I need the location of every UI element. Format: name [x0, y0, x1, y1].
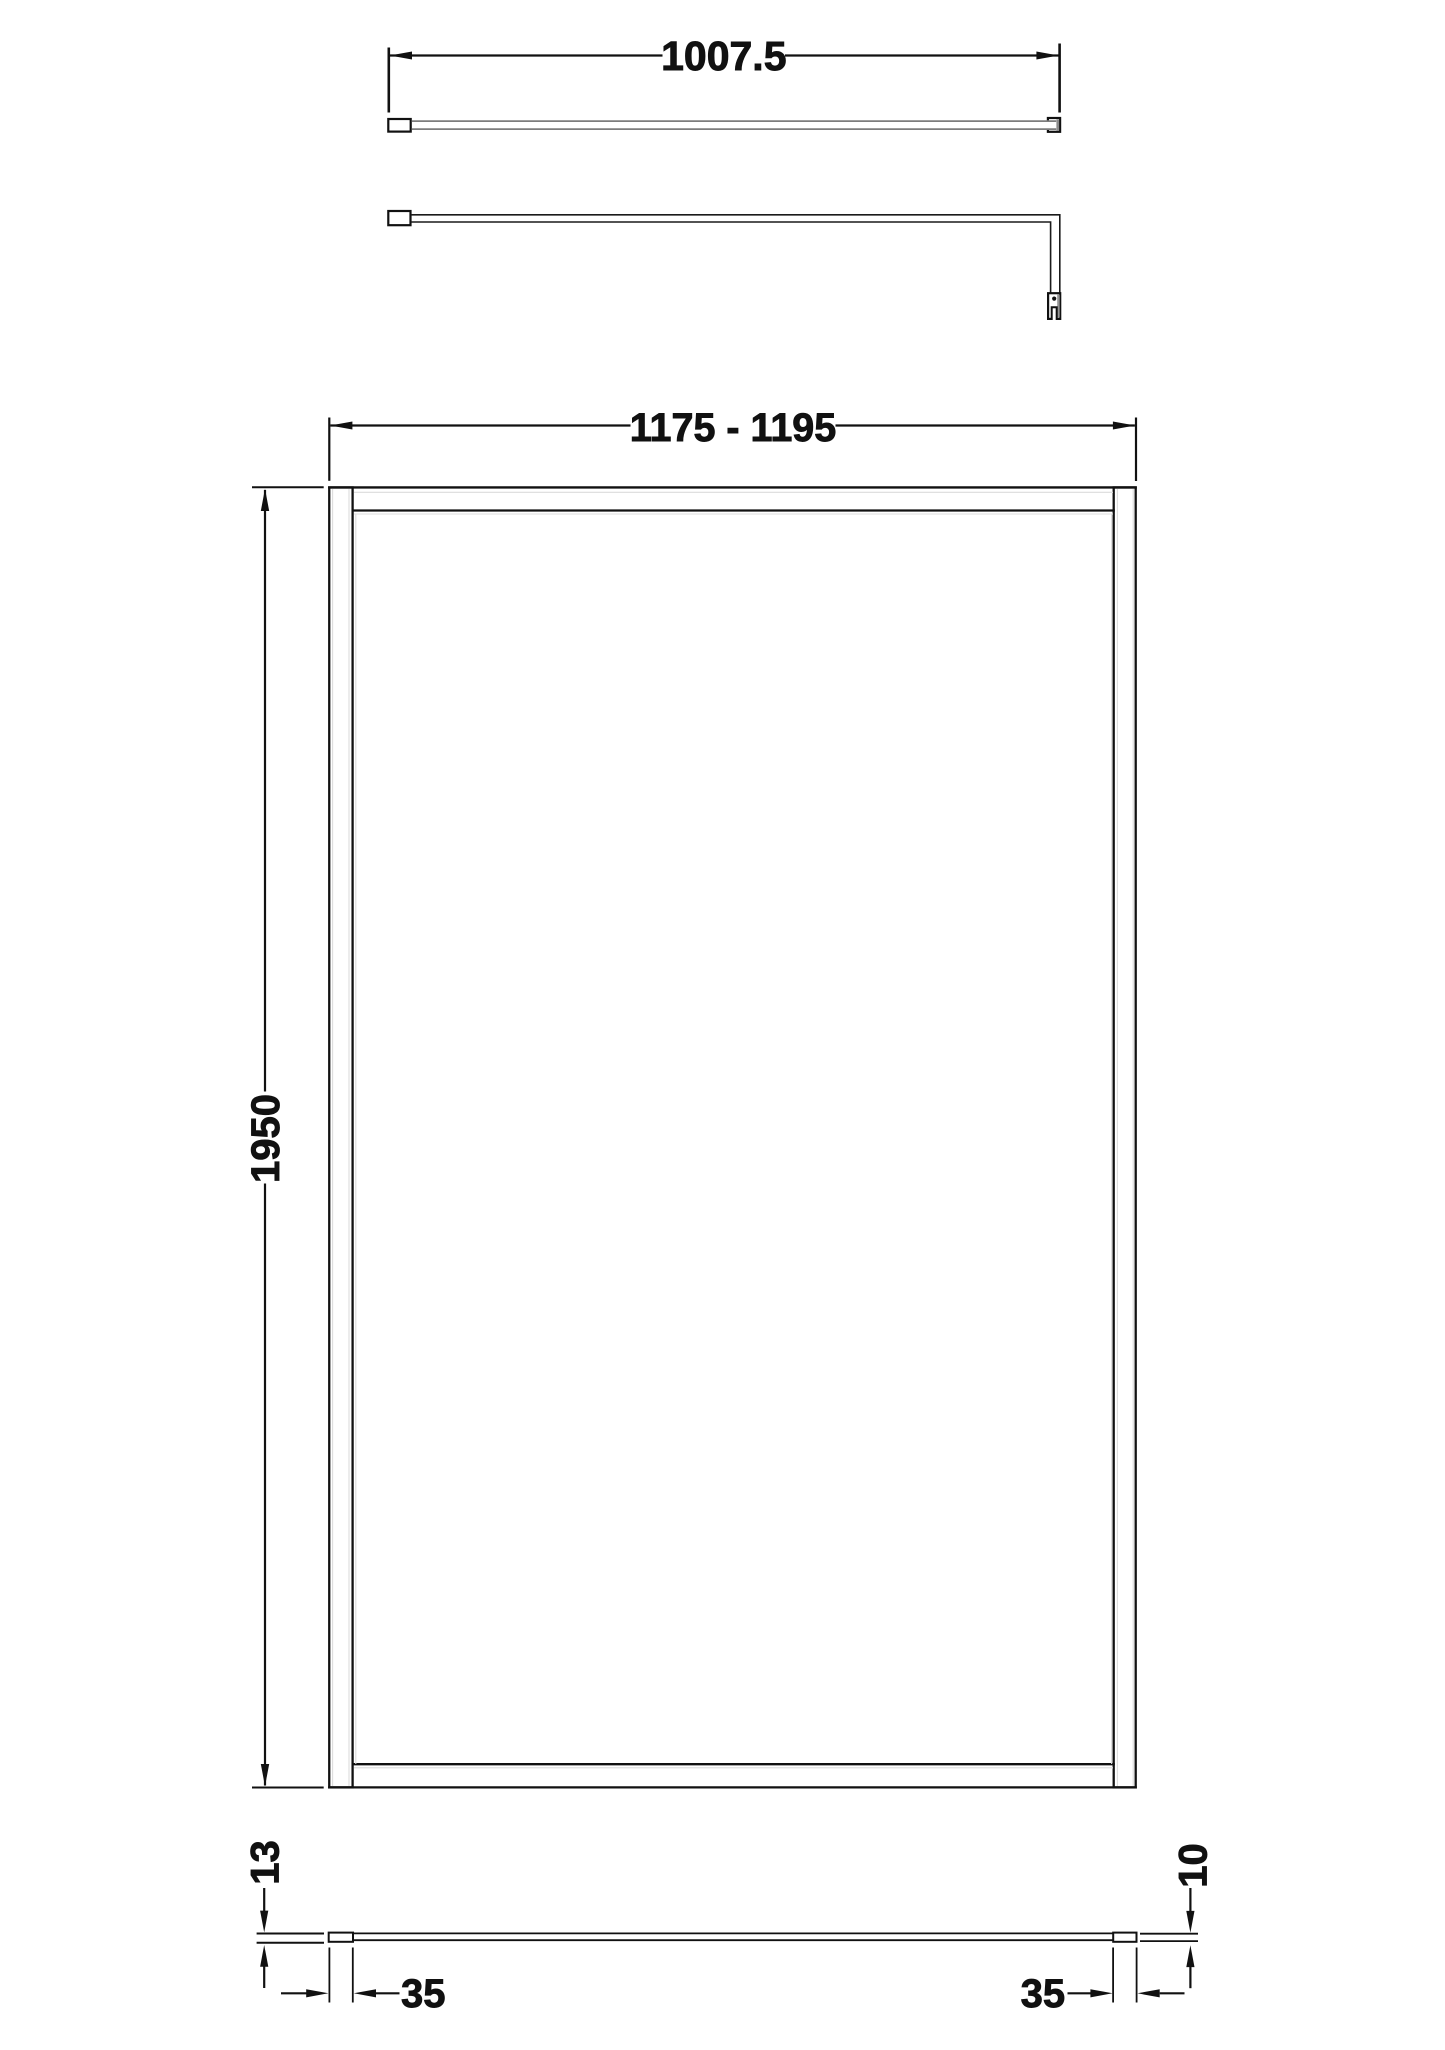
svg-text:35: 35: [401, 1972, 446, 2016]
svg-text:10: 10: [1171, 1843, 1215, 1888]
svg-text:1950: 1950: [244, 1094, 288, 1183]
svg-text:13: 13: [244, 1840, 288, 1885]
svg-text:1007.5: 1007.5: [661, 33, 786, 79]
svg-text:1175 - 1195: 1175 - 1195: [630, 406, 837, 450]
svg-text:35: 35: [1021, 1972, 1066, 2016]
